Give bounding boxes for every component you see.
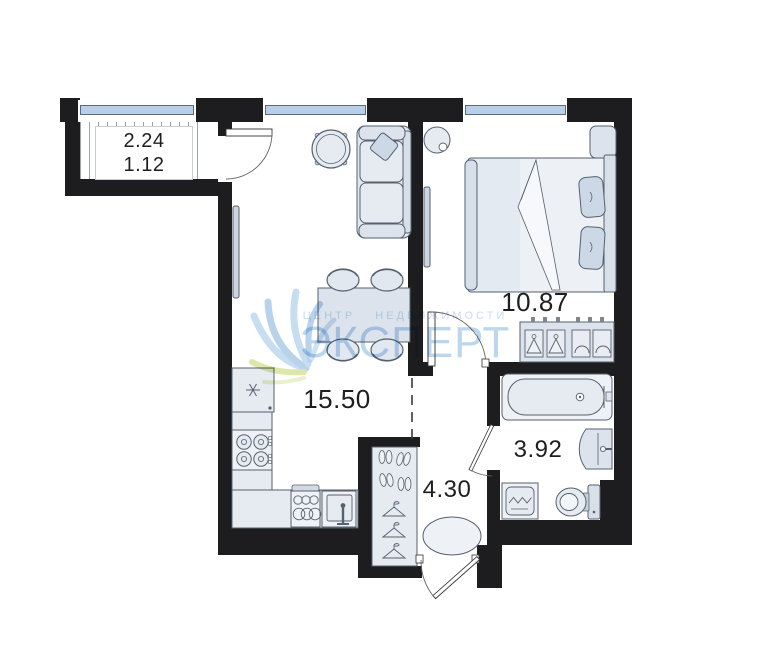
balcony-door-leaf — [226, 129, 272, 136]
bedroom-door-arc — [432, 312, 486, 366]
entrance-door-arc — [421, 560, 434, 597]
door-jamb — [482, 359, 489, 367]
counter-handle — [292, 485, 319, 491]
bathroom-area-label: 3.92 — [498, 436, 578, 464]
floor-plan: 2.24 1.12 — [0, 0, 782, 664]
dresser-wardrobe — [520, 317, 614, 362]
bedroom-door-leaf — [428, 312, 435, 366]
sofa — [357, 126, 411, 238]
bed — [465, 155, 616, 292]
stove — [232, 430, 272, 470]
kitchen-counter — [232, 412, 272, 430]
dining-table — [318, 288, 410, 342]
round-table — [312, 130, 350, 168]
bathtub — [502, 374, 612, 420]
rug — [423, 517, 481, 555]
washbasin — [579, 429, 612, 469]
hallway-area-label: 4.30 — [407, 476, 487, 504]
balcony-door-arc — [226, 133, 272, 179]
kitchen-counter — [232, 470, 272, 490]
living-area-label: 15.50 — [297, 384, 377, 415]
hall-wardrobe — [372, 447, 417, 566]
ceiling-light — [424, 127, 450, 153]
tv-living — [233, 206, 239, 298]
fridge — [232, 368, 274, 412]
bedroom-area-label: 10.87 — [495, 287, 575, 318]
kitchen-sink — [322, 491, 356, 527]
tv-bedroom — [424, 187, 430, 267]
bathroom-door-leaf — [469, 425, 494, 472]
dish-rack — [291, 491, 321, 527]
nightstand — [590, 126, 616, 158]
toilet — [556, 485, 600, 519]
door-jamb — [416, 555, 423, 563]
furniture-layer — [0, 0, 782, 664]
entrance-door-leaf — [433, 557, 480, 599]
washing-machine — [502, 483, 538, 519]
